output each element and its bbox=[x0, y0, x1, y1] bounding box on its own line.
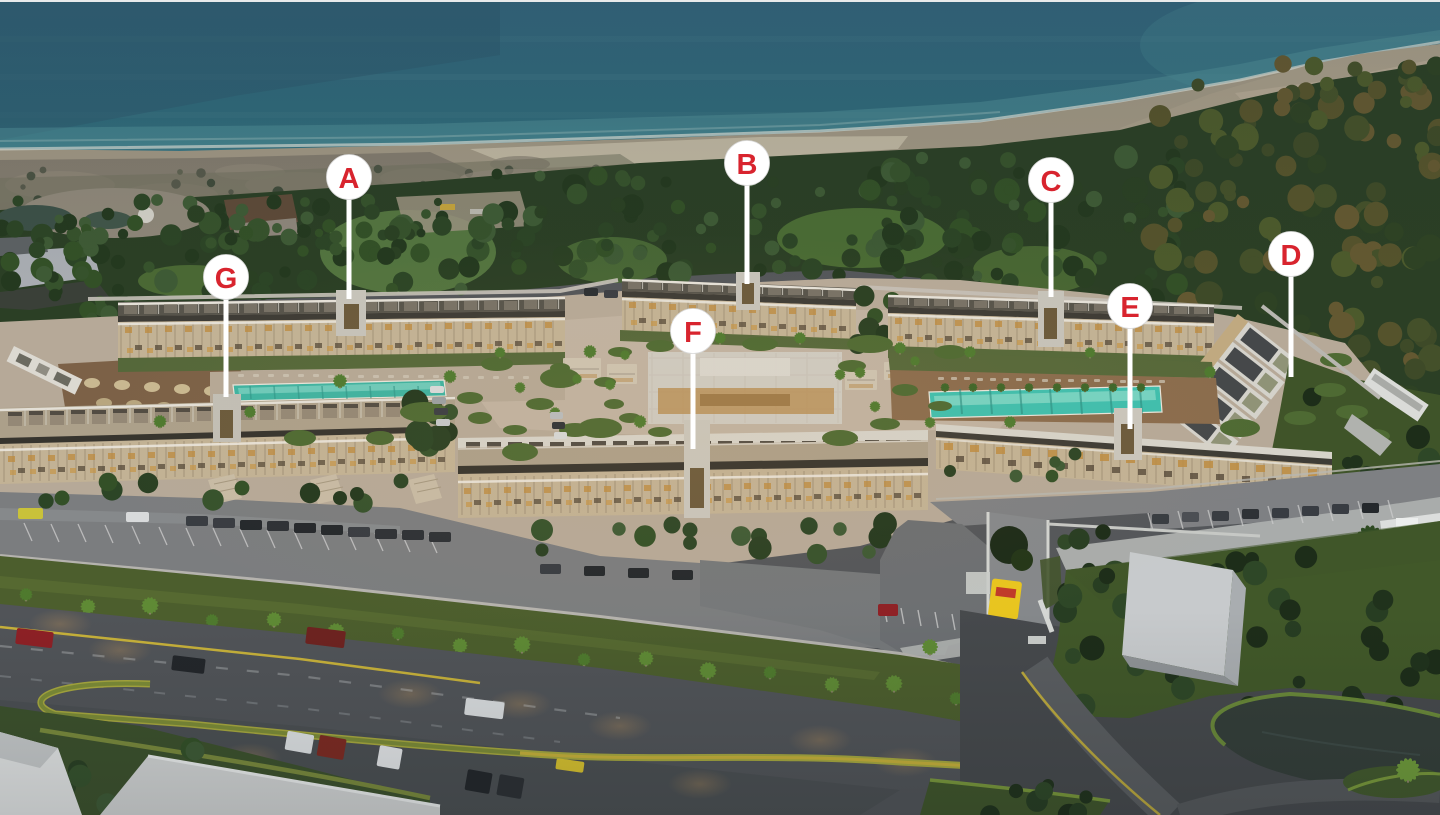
svg-text:D: D bbox=[1281, 240, 1302, 272]
svg-text:F: F bbox=[684, 317, 702, 349]
svg-text:G: G bbox=[215, 263, 238, 295]
svg-text:B: B bbox=[737, 149, 758, 181]
svg-text:A: A bbox=[339, 163, 360, 195]
svg-text:C: C bbox=[1041, 166, 1062, 198]
svg-text:E: E bbox=[1120, 292, 1139, 324]
